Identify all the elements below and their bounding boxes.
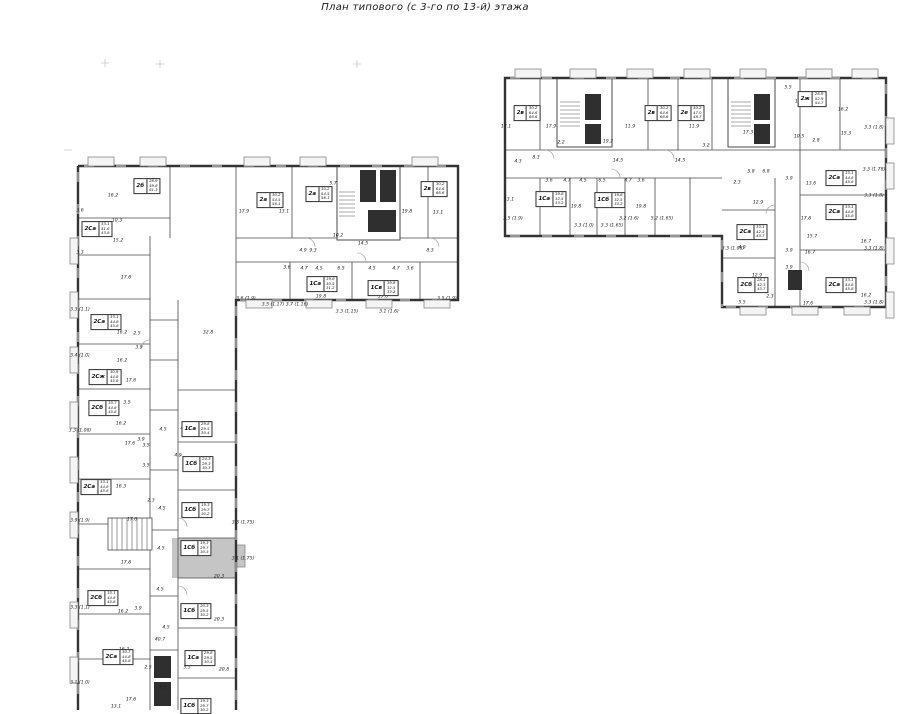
dimension-label: 4.5	[579, 179, 586, 184]
dimension-label: 3.6	[283, 266, 290, 271]
dimension-label: 3.6 (1.9)	[236, 297, 256, 302]
dimension-label: 2.5	[133, 332, 140, 337]
unit-areas: 19.832.533.2	[612, 193, 624, 207]
dimension-label: 3.1 (1.6)	[379, 310, 399, 315]
unit-code: 1Са	[182, 422, 199, 436]
dimension-label: 3.3 (1.8)	[864, 247, 884, 252]
unit-code: 2Сж	[90, 370, 108, 384]
unit-areas: 26.959.861.3	[147, 179, 159, 193]
unit-code: 2Са	[103, 650, 120, 664]
plan-overlay: 2б26.959.861.32а30.254.556.12а30.254.556…	[0, 0, 913, 710]
dimension-label: 3.6	[637, 179, 644, 184]
dimension-label: 20.3	[214, 575, 224, 580]
dimension-label: 17.6	[121, 276, 131, 281]
dimension-label: 3.9	[137, 438, 144, 443]
dimension-label: 9.3	[309, 249, 316, 254]
unit-areas: 33.744.845.8	[106, 401, 118, 415]
dimension-label: 4.7	[300, 267, 307, 272]
dimension-label: 3.9 (1.9)	[70, 519, 90, 524]
dimension-label: 3.3 (1.8)	[864, 194, 884, 199]
dimension-label: 3.6	[406, 267, 413, 272]
dimension-label: 3.5	[142, 464, 149, 469]
dimension-label: 3.3 (1.08)	[722, 247, 745, 252]
dimension-label: 20.3	[214, 618, 224, 623]
dimension-label: 17.6	[125, 442, 135, 447]
unit-areas: 24.329.330.3	[200, 457, 212, 471]
dimension-label: 17.6	[126, 379, 136, 384]
dimension-label: 10.2	[333, 234, 343, 239]
dimension-label: 3.2 (1.6)	[619, 217, 639, 222]
unit-label: 1Сб19.832.533.2	[594, 192, 625, 208]
dimension-label: 12.9	[753, 201, 763, 206]
dimension-label: 14.5	[613, 159, 623, 164]
dimension-label: 40.7	[155, 638, 165, 643]
unit-areas: 19.832.533.2	[385, 281, 397, 295]
unit-label: 1Са29.829.530.4	[181, 421, 212, 437]
dimension-label: 17.3	[743, 131, 753, 136]
unit-code: 2а	[257, 193, 270, 207]
unit-areas: 20.329.530.2	[198, 604, 210, 618]
dimension-label: 3.6	[76, 209, 83, 214]
dimension-label: 5.5	[738, 301, 745, 306]
dimension-label: 3.3 (1.1)	[70, 308, 90, 313]
dimension-label: 32.8	[203, 331, 213, 336]
dimension-label: 4.5	[315, 267, 322, 272]
dimension-label: 6.8	[762, 170, 769, 175]
unit-code: 1Св	[369, 281, 385, 295]
unit-label: 2б26.959.861.3	[133, 178, 160, 194]
unit-label: 1Са29.829.530.4	[184, 650, 215, 666]
unit-areas: 30.247.048.7	[691, 106, 703, 120]
unit-label: 2Сб28.142.343.7	[737, 277, 768, 293]
dimension-label: 5.2 (1.65)	[651, 217, 674, 222]
unit-code: 1Сб	[181, 699, 198, 713]
dimension-label: 17.9	[546, 125, 556, 130]
unit-code: 1Сб	[181, 604, 198, 618]
dimension-label: 2.5	[144, 666, 151, 671]
dimension-label: 3.2	[702, 144, 709, 149]
unit-label: 2Сб33.144.845.8	[87, 590, 118, 606]
dimension-label: 3.9	[134, 607, 141, 612]
dimension-label: 4.5	[159, 686, 166, 691]
unit-code: 2Са	[826, 278, 843, 292]
dimension-label: 3.3 (1.08)	[69, 429, 92, 434]
unit-code: 1Са	[536, 192, 553, 206]
dimension-label: 3.3 (1.75)	[232, 521, 255, 526]
dimension-label: 4.5	[158, 507, 165, 512]
unit-label: 1Са19.832.533.2	[535, 191, 566, 207]
dimension-label: 16.7	[861, 240, 871, 245]
dimension-label: 3.5 (1.9)	[437, 297, 457, 302]
dimension-label: 13.1	[433, 211, 443, 216]
unit-code: 2е	[678, 106, 691, 120]
dimension-label: 8.3	[426, 249, 433, 254]
dimension-label: 3.9	[785, 266, 792, 271]
unit-areas: 29.829.530.4	[199, 422, 211, 436]
dimension-label: 4.7	[392, 267, 399, 272]
unit-areas: 33.144.845.8	[105, 591, 117, 605]
dimension-label: 4.5	[156, 588, 163, 593]
unit-label: 2Сж30.944.845.8	[89, 369, 122, 385]
unit-code: 2в	[515, 106, 527, 120]
dimension-label: 2.3	[766, 295, 773, 300]
dimension-label: 19.8	[636, 205, 646, 210]
unit-code: 2Са	[826, 205, 843, 219]
unit-areas: 33.144.845.8	[108, 315, 120, 329]
unit-label: 1Сб20.329.530.2	[180, 603, 211, 619]
unit-areas: 29.829.530.4	[202, 651, 214, 665]
unit-areas: 33.141.643.8	[99, 222, 111, 236]
dimension-label: 15.3	[841, 132, 851, 137]
unit-code: 1Сб	[181, 541, 198, 555]
dimension-label: 16.2	[861, 294, 871, 299]
dimension-label: 3.1 (1.75)	[232, 557, 255, 562]
unit-areas: 30.264.666.6	[527, 106, 539, 120]
floor-plan-canvas: План типового (с 3-го по 13-й) этажа	[0, 0, 913, 710]
unit-code: 2Са	[91, 315, 108, 329]
dimension-label: 16.2	[108, 194, 118, 199]
dimension-label: 3.3 (1.8)	[864, 301, 884, 306]
unit-code: 2б	[134, 179, 147, 193]
dimension-label: 16.2	[838, 108, 848, 113]
unit-code: 2Са	[81, 480, 98, 494]
dimension-label: 4.5	[157, 547, 164, 552]
dimension-label: 13.6	[806, 182, 816, 187]
unit-label: 2а30.254.556.1	[305, 186, 332, 202]
unit-label: 2а30.254.556.1	[256, 192, 283, 208]
dimension-label: 16.2	[116, 422, 126, 427]
dimension-label: 16.2	[117, 359, 127, 364]
dimension-label: 3.1 (1.0)	[70, 681, 90, 686]
dimension-label: 17.9	[239, 210, 249, 215]
unit-label: 2е30.247.048.7	[677, 105, 704, 121]
dimension-label: 4.5	[162, 626, 169, 631]
dimension-label: 15.7	[807, 235, 817, 240]
dimension-label: 13.1	[504, 198, 514, 203]
dimension-label: 11.9	[625, 125, 635, 130]
dimension-label: 3.5 (1.17)	[262, 303, 285, 308]
unit-label: 2Са30.744.845.8	[102, 649, 133, 665]
dimension-label: 3.7 (1.16)	[286, 303, 309, 308]
unit-code: 2Сб	[88, 591, 105, 605]
dimension-label: 5.8	[747, 170, 754, 175]
dimension-label: 8.3	[532, 156, 539, 161]
dimension-label: 20.8	[219, 668, 229, 673]
dimension-label: 3.9	[785, 249, 792, 254]
dimension-label: 19.2	[603, 140, 613, 145]
dimension-label: 16.2	[118, 610, 128, 615]
dimension-label: 17.1	[501, 125, 511, 130]
unit-code: 1Сб	[183, 457, 200, 471]
dimension-label: 16.3	[116, 485, 126, 490]
dimension-label: 3.3 (1.65)	[601, 224, 624, 229]
dimension-label: 3.3 (1.15)	[336, 310, 359, 315]
unit-label: 1Св19.832.533.2	[368, 280, 399, 296]
unit-code: 2ж	[799, 92, 813, 106]
dimension-label: 6.5	[337, 267, 344, 272]
dimension-label: 3.5	[123, 401, 130, 406]
dimension-label: 5.5	[183, 666, 190, 671]
dimension-label: 10.5	[794, 135, 804, 140]
dimension-label: 3.3 (1.8)	[864, 126, 884, 131]
unit-areas: 19.832.533.2	[553, 192, 565, 206]
unit-areas: 30.264.666.6	[434, 182, 446, 196]
unit-code: 2Са	[737, 225, 754, 239]
dimension-label: 2.3	[147, 499, 154, 504]
dimension-label: 16.2	[117, 331, 127, 336]
dimension-label: 4.7	[624, 179, 631, 184]
unit-label: 2Са33.144.845.8	[825, 170, 856, 186]
unit-label: 2Са33.144.845.8	[825, 204, 856, 220]
dimension-label: 3.5	[142, 444, 149, 449]
dimension-label: 4.5	[368, 267, 375, 272]
dimension-label: 3.5 (1.9)	[503, 217, 523, 222]
dimension-label: 11.9	[689, 125, 699, 130]
dimension-label: 3.6	[545, 179, 552, 184]
unit-areas: 28.142.343.7	[755, 278, 767, 292]
dimension-label: 6.5	[598, 179, 605, 184]
dimension-label: 19.8	[316, 295, 326, 300]
unit-label: 1Сб19.329.730.2	[180, 698, 211, 714]
unit-label: 1Сб19.329.730.3	[180, 540, 211, 556]
dimension-label: 13.1	[279, 210, 289, 215]
unit-label: 2Сб33.744.845.8	[88, 400, 119, 416]
unit-areas: 30.264.666.6	[658, 106, 670, 120]
unit-code: 1Сб	[595, 193, 612, 207]
dimension-label: 4.5	[159, 428, 166, 433]
dimension-label: 15.2	[113, 239, 123, 244]
dimension-label: 17.6	[803, 302, 813, 307]
dimension-label: 4.7	[563, 179, 570, 184]
unit-code: 2Са	[826, 171, 843, 185]
unit-areas: 26.952.954.7	[813, 92, 825, 106]
unit-code: 2в	[646, 106, 658, 120]
unit-areas: 30.254.556.1	[270, 193, 282, 207]
dimension-label: 19.8	[402, 210, 412, 215]
unit-code: 1Сб	[182, 503, 199, 517]
unit-label: 2ж26.952.954.7	[798, 91, 827, 107]
unit-areas: 33.144.845.8	[98, 480, 110, 494]
unit-areas: 30.254.556.1	[319, 187, 331, 201]
dimension-label: 2.2	[557, 141, 564, 146]
unit-code: 1Са	[307, 277, 324, 291]
unit-areas: 33.144.845.8	[843, 205, 855, 219]
dimension-label: 10.3	[112, 219, 122, 224]
dimension-label: 4.9	[299, 249, 306, 254]
dimension-label: 3.4 (1.0)	[70, 354, 90, 359]
dimension-label: 3.3	[76, 251, 83, 256]
dimension-label: 3.3 (1.78)	[863, 168, 886, 173]
dimension-label: 13.1	[111, 705, 121, 710]
dimension-label: 17.6	[127, 518, 137, 523]
unit-label: 2Са33.142.343.7	[736, 224, 767, 240]
unit-label: 1Са19.830.531.2	[306, 276, 337, 292]
unit-code: 2а	[306, 187, 319, 201]
unit-label: 2Са33.141.643.8	[81, 221, 112, 237]
dimension-label: 5.5	[784, 86, 791, 91]
unit-code: 1Са	[185, 651, 202, 665]
dimension-label: 3.9	[785, 177, 792, 182]
unit-label: 2Са33.144.845.8	[80, 479, 111, 495]
unit-areas: 33.142.343.7	[754, 225, 766, 239]
unit-label: 2Са33.144.845.8	[90, 314, 121, 330]
dimension-label: 14.5	[358, 242, 368, 247]
unit-areas: 33.144.845.8	[843, 171, 855, 185]
unit-areas: 19.329.730.3	[198, 541, 210, 555]
dimension-label: 2.8	[812, 139, 819, 144]
unit-areas: 19.329.730.2	[198, 699, 210, 713]
unit-areas: 19.329.730.2	[199, 503, 211, 517]
dimension-label: 17.6	[801, 217, 811, 222]
dimension-label: 3.3 (1.1)	[70, 606, 90, 611]
unit-areas: 30.744.845.8	[120, 650, 132, 664]
unit-label: 2в30.264.666.6	[421, 181, 448, 197]
unit-label: 1Сб19.329.730.2	[181, 502, 212, 518]
unit-code: 2Сб	[89, 401, 106, 415]
dimension-label: 14.5	[675, 159, 685, 164]
unit-areas: 30.944.845.8	[108, 370, 120, 384]
dimension-label: 4.9	[174, 454, 181, 459]
dimension-label: 17.6	[126, 698, 136, 703]
unit-label: 2в30.264.666.6	[514, 105, 541, 121]
unit-code: 2в	[422, 182, 434, 196]
unit-areas: 33.144.845.8	[843, 278, 855, 292]
unit-label: 2в30.264.666.6	[645, 105, 672, 121]
dimension-label: 17.6	[121, 561, 131, 566]
unit-label: 2Са33.144.845.8	[825, 277, 856, 293]
dimension-label: 19.8	[571, 205, 581, 210]
dimension-label: 3.3 (1.0)	[574, 224, 594, 229]
unit-label: 1Сб24.329.330.3	[182, 456, 213, 472]
dimension-label: 16.7	[805, 251, 815, 256]
unit-code: 2Сб	[738, 278, 755, 292]
dimension-label: 3.9	[135, 346, 142, 351]
unit-areas: 19.830.531.2	[324, 277, 336, 291]
dimension-label: 4.3	[514, 160, 521, 165]
dimension-label: 2.3	[733, 181, 740, 186]
unit-code: 2Са	[82, 222, 99, 236]
